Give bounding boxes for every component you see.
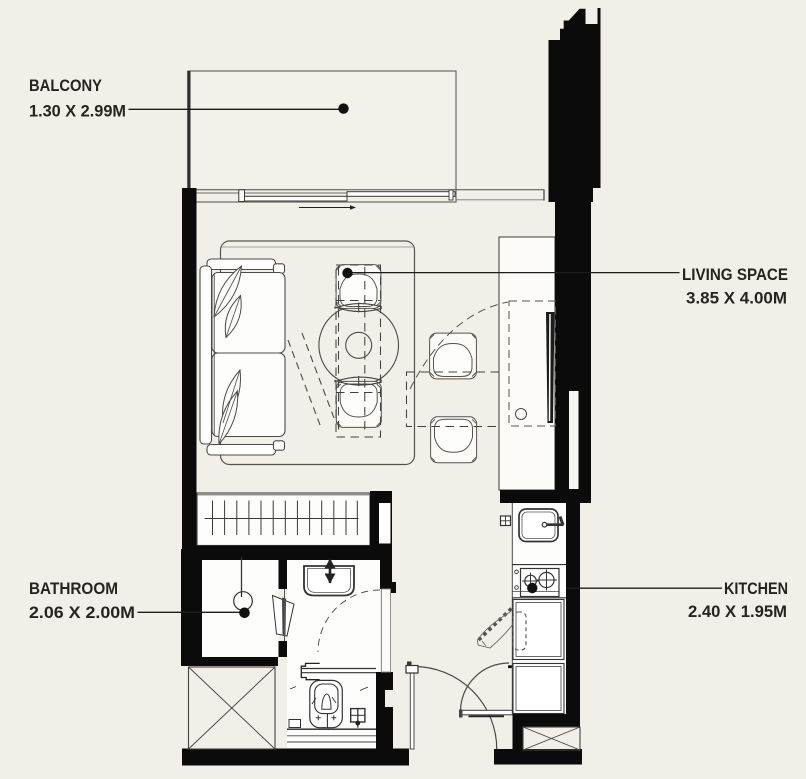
svg-text:KITCHEN: KITCHEN [724, 580, 788, 598]
svg-text:3.85 X 4.00M: 3.85 X 4.00M [686, 290, 787, 308]
svg-text:2.06 X 2.00M: 2.06 X 2.00M [29, 604, 135, 622]
svg-text:LIVING SPACE: LIVING SPACE [682, 266, 788, 284]
svg-text:1.30 X 2.99M: 1.30 X 2.99M [29, 103, 126, 121]
svg-text:BATHROOM: BATHROOM [29, 580, 118, 598]
svg-text:2.40 X 1.95M: 2.40 X 1.95M [688, 603, 787, 621]
svg-text:BALCONY: BALCONY [29, 77, 102, 95]
